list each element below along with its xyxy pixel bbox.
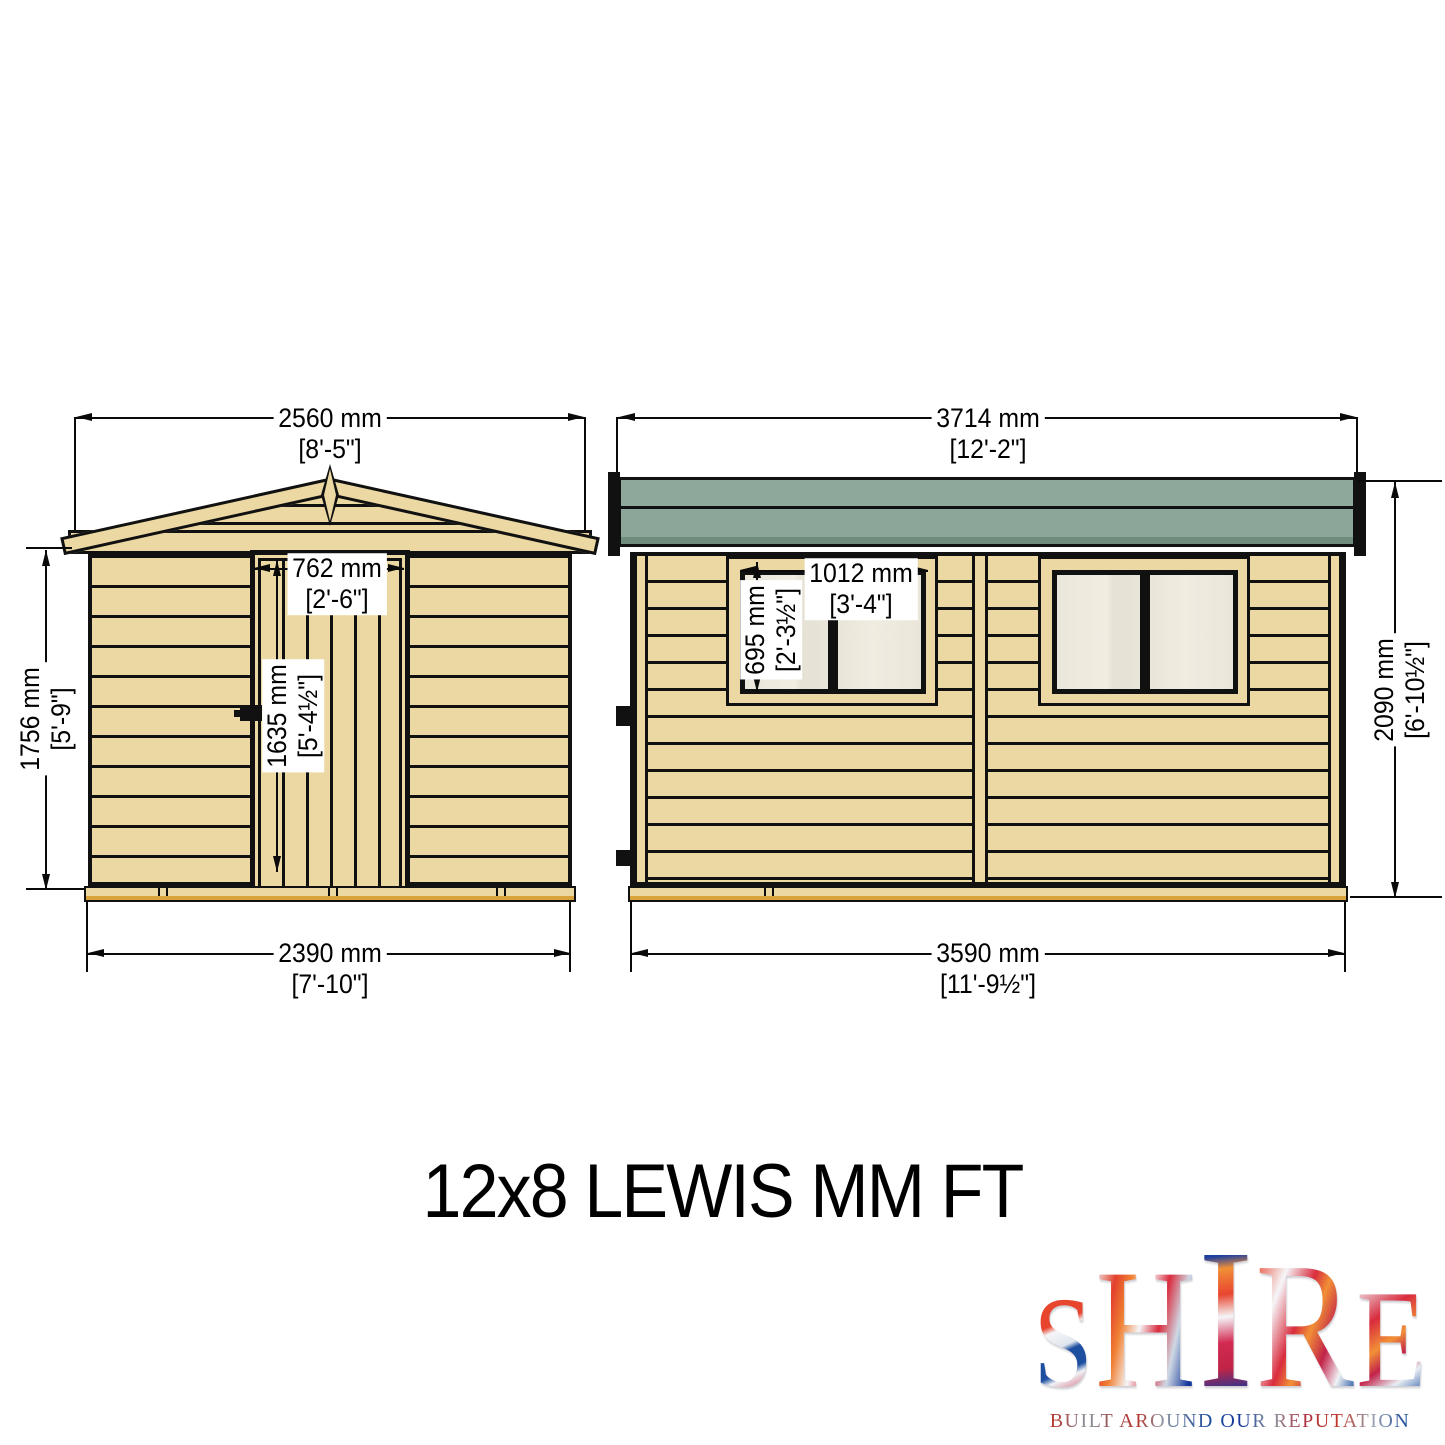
dim-ft: [5'-9"] <box>46 667 77 771</box>
ext-line <box>1358 480 1442 482</box>
dim-mm: 695 mm <box>740 585 771 675</box>
shire-wordmark: S H I R E <box>1058 1242 1402 1398</box>
dim-arrow-down <box>42 874 50 890</box>
ext-line <box>1356 417 1358 473</box>
dim-label-front-base-width: 2390 mm [7'-10"] <box>274 938 387 1000</box>
dim-ft: [2'-6"] <box>292 584 382 615</box>
dim-mm: 2090 mm <box>1369 638 1400 742</box>
ext-line <box>616 417 618 473</box>
hinge <box>616 850 630 866</box>
dim-ft: [3'-4"] <box>809 589 913 620</box>
dim-label-window-width: 1012 mm [3'-4"] <box>805 558 918 620</box>
dim-arrow-up <box>1391 482 1399 498</box>
dim-ft: [2'-3½"] <box>771 585 802 675</box>
dim-ft: [11'-9½"] <box>936 969 1040 1000</box>
base-joint <box>764 888 766 896</box>
ext-line <box>584 417 586 541</box>
dim-mm: 1635 mm <box>262 664 293 768</box>
dim-arrow-up <box>42 550 50 566</box>
base-joint <box>336 888 338 896</box>
logo-letter-r: R <box>1255 1256 1353 1396</box>
shire-logo: S H I R E BUILT AROUND OUR REPUTATION <box>1020 1242 1440 1433</box>
shed-dimension-drawing: 2560 mm [8'-5"] 762 mm [2'-6"] <box>0 0 1445 1445</box>
base-joint <box>504 888 506 896</box>
door-handle-stem <box>234 710 242 717</box>
dim-arrow-left <box>88 949 104 957</box>
dim-label-side-overall-height: 2090 mm [6'-10½"] <box>1369 634 1431 747</box>
dim-label-window-height: 695 mm [2'-3½"] <box>740 581 802 680</box>
hinge <box>616 706 630 726</box>
logo-letter-e: E <box>1356 1285 1426 1394</box>
door-handle <box>240 705 262 721</box>
base-joint <box>158 888 160 896</box>
panel-joint-trim <box>972 556 988 882</box>
ext-line <box>1344 902 1346 972</box>
dim-label-door-width: 762 mm [2'-6"] <box>288 553 387 615</box>
dim-arrow-up <box>753 562 761 578</box>
ext-line <box>26 888 84 890</box>
dim-mm: 1756 mm <box>15 667 46 771</box>
window-2-mullion <box>1140 575 1150 689</box>
ext-line <box>569 902 571 972</box>
corner-trim-left <box>634 556 648 882</box>
dim-arrow-left <box>619 413 635 421</box>
logo-letter-h: H <box>1095 1263 1196 1396</box>
dim-ft: [12'-2"] <box>936 434 1040 465</box>
dim-mm: 2390 mm <box>278 938 382 969</box>
dim-ft: [7'-10"] <box>278 969 382 1000</box>
dim-arrow-right <box>1340 413 1356 421</box>
dim-label-front-height: 1756 mm [5'-9"] <box>15 663 77 776</box>
dim-arrow-down <box>1391 882 1399 898</box>
dim-mm: 1012 mm <box>809 558 913 589</box>
dim-mm: 3590 mm <box>936 938 1040 969</box>
base-joint <box>772 888 774 896</box>
dim-arrow-up <box>273 560 281 576</box>
dim-mm: 2560 mm <box>278 403 382 434</box>
base-joint <box>496 888 498 896</box>
dim-label-side-overall-width: 3714 mm [12'-2"] <box>932 403 1045 465</box>
dim-arrow-right <box>1328 949 1344 957</box>
corner-trim-right <box>1328 556 1342 882</box>
dim-mm: 3714 mm <box>936 403 1040 434</box>
dim-ft: [8'-5"] <box>278 434 382 465</box>
ext-line <box>86 902 88 972</box>
dim-arrow-right <box>388 564 404 572</box>
dim-arrow-left <box>76 413 92 421</box>
dim-label-side-base-width: 3590 mm [11'-9½"] <box>932 938 1045 1000</box>
dim-ft: [5'-4½"] <box>293 664 324 768</box>
ext-line <box>26 547 72 549</box>
drawing-title: 12x8 LEWIS MM FT <box>58 1150 1387 1234</box>
dim-arrow-right <box>554 949 570 957</box>
base-joint <box>328 888 330 896</box>
dim-mm: 762 mm <box>292 553 382 584</box>
ext-line <box>630 902 632 972</box>
dim-label-front-overall-width: 2560 mm [8'-5"] <box>274 403 387 465</box>
dim-arrow-down <box>273 856 281 872</box>
dim-ft: [6'-10½"] <box>1400 638 1431 742</box>
dim-arrow-left <box>632 949 648 957</box>
side-base <box>628 886 1348 902</box>
ext-line <box>74 417 76 541</box>
side-roof-felt <box>618 477 1356 547</box>
dim-arrow-left <box>254 564 270 572</box>
dim-label-door-height: 1635 mm [5'-4½"] <box>262 660 324 773</box>
base-joint <box>166 888 168 896</box>
logo-letter-i: I <box>1198 1242 1253 1398</box>
logo-letter-s: S <box>1033 1293 1092 1394</box>
dim-arrow-right <box>568 413 584 421</box>
